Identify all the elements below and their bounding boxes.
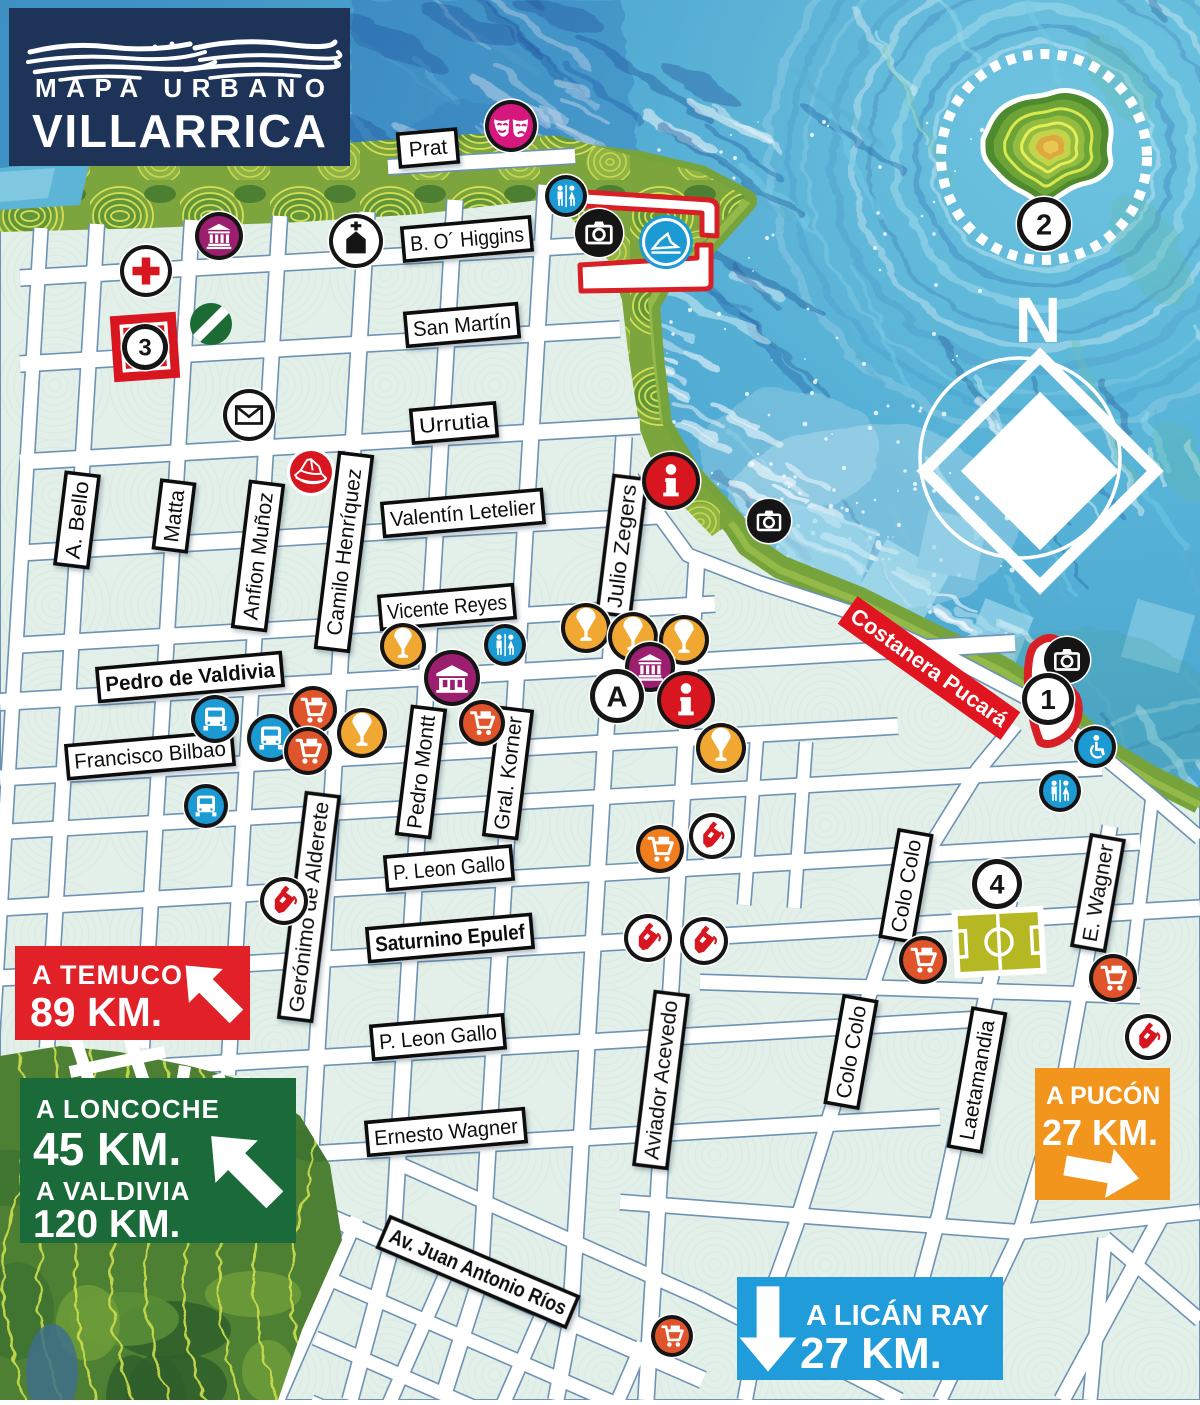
svg-text:89 KM.: 89 KM.	[30, 989, 162, 1035]
svg-text:N: N	[1015, 284, 1061, 356]
svg-text:A TEMUCO: A TEMUCO	[32, 960, 183, 990]
svg-text:120 KM.: 120 KM.	[33, 1203, 180, 1246]
svg-text:Prat: Prat	[408, 135, 449, 161]
svg-text:27 KM.: 27 KM.	[1042, 1112, 1158, 1153]
svg-text:A VALDIVIA: A VALDIVIA	[36, 1176, 190, 1206]
svg-text:4: 4	[989, 870, 1004, 900]
svg-text:27 KM.: 27 KM.	[800, 1329, 942, 1378]
svg-text:1: 1	[1040, 684, 1056, 715]
svg-text:A LICÁN RAY: A LICÁN RAY	[806, 1298, 989, 1332]
svg-text:45 KM.: 45 KM.	[33, 1123, 181, 1175]
svg-text:A: A	[607, 681, 628, 713]
svg-text:2: 2	[1036, 209, 1052, 241]
svg-text:A LONCOCHE: A LONCOCHE	[36, 1094, 220, 1124]
svg-text:MAPA URBANO: MAPA URBANO	[35, 73, 325, 103]
svg-text:VILLARRICA: VILLARRICA	[32, 105, 328, 157]
svg-text:A PUCÓN: A PUCÓN	[1046, 1080, 1160, 1110]
svg-text:3: 3	[138, 335, 151, 362]
